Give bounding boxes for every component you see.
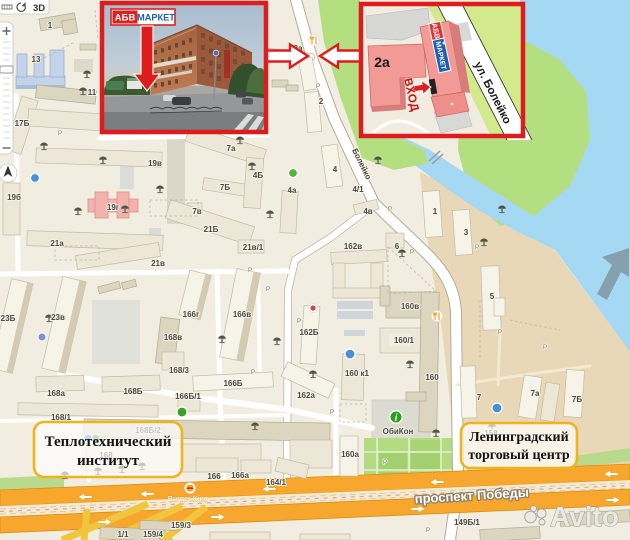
svg-text:160 к1: 160 к1 [345,369,370,378]
svg-text:P: P [410,249,414,256]
svg-text:166: 166 [207,472,221,481]
svg-text:P: P [266,286,270,293]
svg-text:19в: 19в [148,159,162,168]
svg-text:13: 13 [32,55,41,64]
svg-text:160/1: 160/1 [394,336,415,345]
svg-text:23Б: 23Б [1,314,16,323]
svg-text:160а: 160а [341,450,359,459]
svg-text:4/1: 4/1 [352,185,364,194]
svg-text:7а: 7а [531,389,540,398]
svg-text:160: 160 [425,373,439,382]
svg-text:Ленинградский: Ленинградский [469,430,568,445]
svg-text:ОбиКон: ОбиКон [383,427,414,436]
svg-text:7Б: 7Б [220,183,230,192]
svg-text:4Б: 4Б [253,171,263,180]
svg-text:6: 6 [395,242,400,251]
svg-text:166а: 166а [231,471,249,480]
svg-text:Avito: Avito [550,501,619,532]
svg-text:160в: 160в [401,302,419,311]
svg-text:168а: 168а [47,389,65,398]
svg-text:3D: 3D [33,3,45,14]
svg-text:P: P [316,83,320,90]
svg-text:МАРКЕТ: МАРКЕТ [137,12,175,22]
svg-text:11: 11 [88,88,97,97]
svg-text:4а: 4а [288,186,297,195]
svg-text:P: P [426,527,430,534]
svg-text:166г: 166г [183,310,200,319]
svg-text:4: 4 [333,165,338,174]
svg-text:торговый центр: торговый центр [468,448,570,463]
svg-text:168Б: 168Б [123,387,142,396]
svg-text:институт: институт [77,453,140,469]
svg-text:1: 1 [48,21,53,30]
svg-text:166Б/1: 166Б/1 [175,392,201,401]
svg-text:21в: 21в [151,259,165,268]
svg-text:2: 2 [319,97,324,106]
svg-text:АБВ: АБВ [115,12,136,23]
svg-text:Burger King: Burger King [168,496,208,503]
svg-text:P: P [383,459,387,466]
svg-text:P: P [475,244,479,251]
svg-text:P: P [251,369,255,376]
svg-text:168в: 168в [164,333,182,342]
svg-text:i: i [395,413,398,424]
svg-text:2а: 2а [374,54,390,70]
svg-text:3: 3 [464,228,469,237]
svg-text:4в: 4в [363,207,372,216]
svg-text:Теплотехнический: Теплотехнический [45,434,172,450]
svg-text:149Б/1: 149Б/1 [454,518,480,527]
svg-text:P: P [388,206,392,213]
svg-text:21Б: 21Б [204,225,219,234]
svg-text:168/1: 168/1 [51,413,72,422]
svg-text:1: 1 [433,207,438,216]
svg-text:166Б: 166Б [223,379,242,388]
svg-text:P: P [297,318,301,325]
svg-text:P: P [248,267,252,274]
svg-text:5: 5 [490,292,495,301]
svg-text:7: 7 [477,393,482,402]
svg-text:21в/1: 21в/1 [243,243,264,252]
svg-text:159/3: 159/3 [171,521,192,530]
svg-text:P: P [498,329,502,336]
svg-text:P: P [330,409,334,416]
svg-text:P: P [543,344,547,351]
svg-text:162в: 162в [344,242,362,251]
svg-text:7а: 7а [227,144,236,153]
svg-text:166в: 166в [233,310,251,319]
svg-text:162а: 162а [297,391,315,400]
svg-text:21а: 21а [50,239,64,248]
svg-text:7в: 7в [192,207,201,216]
svg-text:23в: 23в [51,313,65,322]
svg-text:7Б: 7Б [572,395,582,404]
svg-text:17Б: 17Б [15,119,30,128]
svg-text:162Б: 162Б [299,328,318,337]
svg-text:168/3: 168/3 [169,366,190,375]
svg-text:159/4: 159/4 [143,530,164,539]
svg-text:P: P [58,130,62,137]
svg-text:19б: 19б [7,193,21,202]
svg-text:164/1: 164/1 [266,478,287,487]
svg-text:19г: 19г [107,203,120,212]
svg-text:1/1: 1/1 [117,530,129,539]
